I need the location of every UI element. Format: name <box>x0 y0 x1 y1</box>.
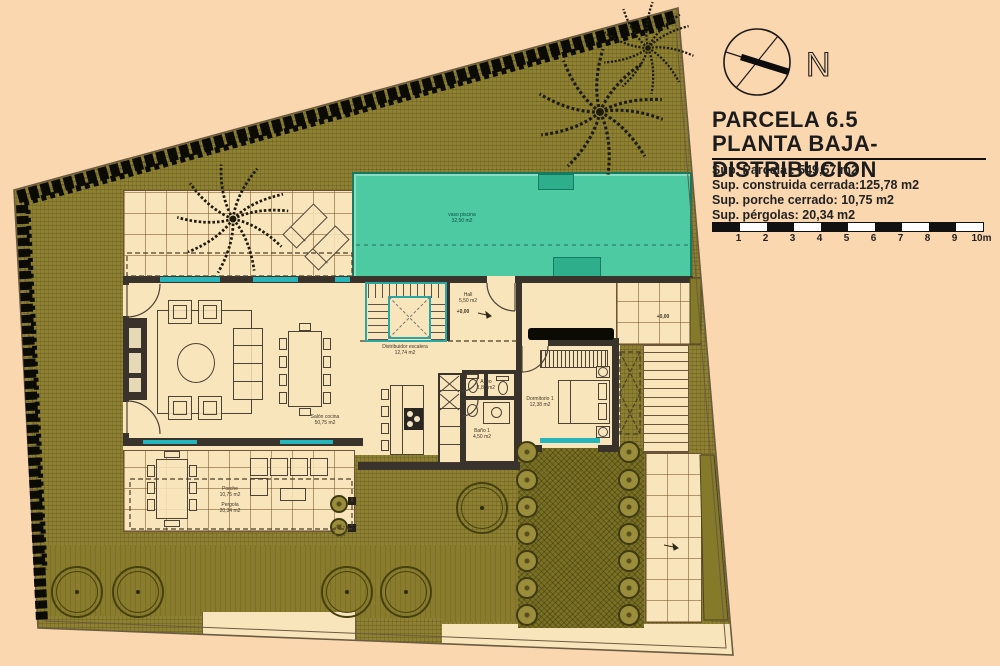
pool-steps <box>538 174 574 190</box>
bush <box>516 496 538 518</box>
detail-line: Sup. pérgolas: 20,34 m2 <box>712 208 855 222</box>
room-label-distribuidor: Distribuidor escalera12,74 m2 <box>363 344 447 357</box>
fireplace-slot <box>129 353 141 373</box>
tree <box>321 566 373 618</box>
room-label-dormitorio1: Dormitorio 112,38 m2 <box>522 396 558 409</box>
armchair <box>198 300 222 324</box>
plot-area <box>0 0 1000 666</box>
bush <box>618 441 640 463</box>
pergola-post <box>348 497 356 505</box>
room-label-hall: Hall5,50 m2 <box>450 292 486 305</box>
burner <box>407 411 413 417</box>
stair-treads <box>368 283 446 298</box>
armchair <box>198 396 222 420</box>
toilet <box>498 381 508 395</box>
north-compass <box>724 29 790 95</box>
stair-treads <box>431 298 446 340</box>
east-terrace-low <box>645 453 702 623</box>
burner <box>414 416 420 422</box>
hedge-strip-left <box>38 616 202 640</box>
hall-east-wall <box>516 283 522 345</box>
driveway <box>202 612 356 656</box>
room-label-piscina: vaso piscina32,50 m2 <box>432 212 492 225</box>
floor-plan-sheet: N Salón cocina50,75 m2 Distribuidor esca… <box>0 0 1000 666</box>
east-terrace-top <box>616 277 700 345</box>
fireplace-slot <box>129 328 141 348</box>
bottom-walk <box>442 624 742 656</box>
room-label-aseo: Aseo1,80 m2 <box>474 379 498 392</box>
bedroom-east-wall <box>612 338 619 452</box>
stool <box>381 440 389 451</box>
porch-chair <box>147 465 155 477</box>
outdoor-coffee-table <box>280 488 306 501</box>
outdoor-sofa-module <box>290 458 308 476</box>
bed-blanket-line <box>570 381 571 423</box>
detail-line: Sup. Parcela : 549,57 m2 <box>712 163 858 177</box>
stool <box>381 389 389 400</box>
room-label-pergola: Pergola20,34 m2 <box>203 502 257 515</box>
bush <box>516 577 538 599</box>
tree <box>112 566 164 618</box>
bush <box>618 550 640 572</box>
kitchen-units <box>438 373 462 465</box>
chair <box>279 374 287 386</box>
tree <box>456 482 508 534</box>
pillow <box>598 383 607 400</box>
bush <box>330 518 348 536</box>
hedge-strip-right <box>356 618 442 642</box>
chair <box>323 374 331 386</box>
scale-bar <box>712 222 984 232</box>
bush <box>516 550 538 572</box>
armchair <box>168 396 192 420</box>
porch-chair <box>147 482 155 494</box>
bush <box>516 604 538 626</box>
dining-table <box>288 331 322 407</box>
chair <box>279 338 287 350</box>
tree <box>51 566 103 618</box>
room-label-porche: Porche10,75 m2 <box>203 486 257 499</box>
stair-treads <box>368 298 388 340</box>
chair <box>323 338 331 350</box>
east-steps <box>643 345 689 453</box>
bedroom-window <box>540 438 600 443</box>
bush <box>516 523 538 545</box>
burner <box>407 421 413 427</box>
outdoor-sofa-module <box>310 458 328 476</box>
porch-chair <box>189 482 197 494</box>
window <box>280 440 333 444</box>
detail-line: Sup. construida cerrada:125,78 m2 <box>712 178 919 192</box>
bush <box>516 441 538 463</box>
bedside-lamp <box>598 367 608 377</box>
shower-drain <box>491 407 502 418</box>
sink <box>467 404 478 417</box>
level-label-hall: +0,00 <box>448 309 478 315</box>
room-label-bano1: Baño 14,50 m2 <box>462 428 502 441</box>
bush <box>618 604 640 626</box>
insulation-scribble <box>528 328 614 340</box>
window <box>160 277 220 282</box>
room-label-salon: Salón cocina50,75 m2 <box>285 414 365 427</box>
porch-chair <box>189 465 197 477</box>
armchair <box>168 300 192 324</box>
north-letter: N <box>806 46 831 84</box>
bush <box>618 469 640 491</box>
chair <box>279 356 287 368</box>
bath-partition <box>462 396 518 400</box>
bedside-lamp <box>598 427 608 437</box>
stool <box>381 406 389 417</box>
window <box>335 277 350 282</box>
sofa <box>233 328 263 400</box>
window <box>253 277 298 282</box>
fireplace-slot <box>129 378 141 392</box>
chair <box>299 323 311 331</box>
tree <box>380 566 432 618</box>
outdoor-sofa-module <box>270 458 288 476</box>
detail-line: Sup. porche cerrado: 10,75 m2 <box>712 193 894 207</box>
porch-chair <box>164 451 180 458</box>
outdoor-sofa-module <box>250 458 268 476</box>
bedroom-south-wall <box>598 445 619 452</box>
sheet-title: PARCELA 6.5 <box>712 107 858 133</box>
bush <box>330 495 348 513</box>
bush <box>618 496 640 518</box>
chair <box>323 392 331 404</box>
bush <box>618 523 640 545</box>
stool <box>381 423 389 434</box>
chair <box>323 356 331 368</box>
window <box>143 440 197 444</box>
bush <box>618 577 640 599</box>
coffee-table <box>177 343 215 383</box>
level-label-terrace: +0,00 <box>648 314 678 320</box>
scale-bar-numbers: 12 34 56 78 910m <box>725 233 995 244</box>
bush <box>516 469 538 491</box>
porch-table <box>156 459 188 519</box>
entry-door-gap <box>487 276 515 283</box>
pillow <box>598 403 607 420</box>
island-divider <box>402 386 403 454</box>
porch-chair <box>147 499 155 511</box>
chair <box>279 392 287 404</box>
title-underline <box>712 158 986 160</box>
porch-chair <box>189 499 197 511</box>
door-gap <box>123 402 129 433</box>
pool <box>352 172 692 283</box>
door-gap <box>123 285 129 316</box>
porch-chair <box>164 520 180 527</box>
pergola-post <box>348 524 356 532</box>
